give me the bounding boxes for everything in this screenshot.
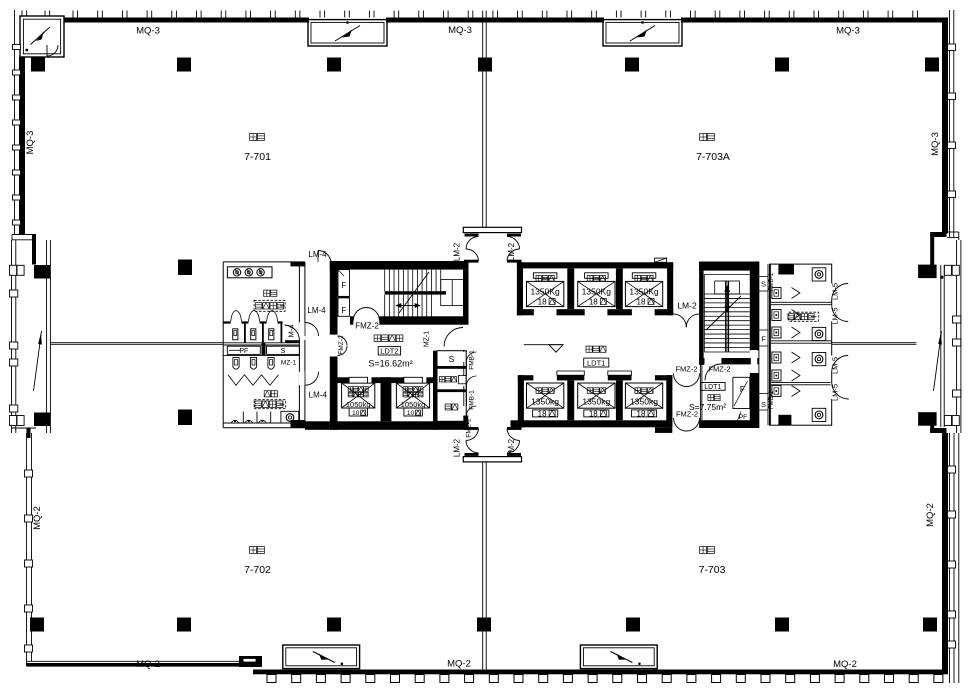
svg-text:18: 18 (637, 409, 646, 418)
svg-text:18: 18 (589, 297, 598, 306)
svg-text:1350kg: 1350kg (531, 396, 559, 406)
svg-text:1350kg: 1350kg (630, 396, 658, 406)
svg-text:LM-5: LM-5 (831, 384, 840, 401)
svg-text:18: 18 (637, 297, 646, 306)
svg-text:18: 18 (538, 297, 547, 306)
svg-text:MZ-1: MZ-1 (281, 360, 297, 367)
svg-text:MZ-1: MZ-1 (424, 331, 431, 347)
svg-text:18: 18 (589, 409, 598, 418)
svg-text:LM-5: LM-5 (831, 357, 840, 374)
svg-text:LM-2: LM-2 (453, 242, 462, 261)
svg-text:10: 10 (407, 410, 415, 417)
svg-text:LM-2: LM-2 (677, 301, 697, 311)
svg-text:1350Kg: 1350Kg (629, 286, 659, 296)
svg-text:S: S (281, 348, 286, 355)
svg-text:1350Kg: 1350Kg (530, 286, 560, 296)
svg-text:LM-2: LM-2 (507, 242, 516, 261)
svg-text:PF: PF (739, 414, 747, 421)
svg-text:LM-5: LM-5 (831, 307, 840, 324)
svg-text:MQ-3: MQ-3 (836, 26, 860, 37)
svg-text:S: S (449, 354, 455, 364)
svg-text:MQ-2: MQ-2 (925, 503, 936, 527)
svg-text:F: F (341, 281, 346, 290)
svg-text:FMZ-2: FMZ-2 (675, 365, 697, 374)
svg-text:LM-4: LM-4 (309, 391, 328, 400)
svg-text:7-703A: 7-703A (696, 151, 730, 163)
svg-text:FMB-1: FMB-1 (769, 390, 775, 409)
svg-text:7-701: 7-701 (244, 151, 271, 163)
svg-text:MQ-3: MQ-3 (25, 131, 36, 155)
svg-text:MQ-3: MQ-3 (448, 25, 472, 36)
svg-text:LDT1: LDT1 (587, 359, 605, 368)
svg-text:7-703: 7-703 (699, 564, 726, 576)
svg-text:LM-5: LM-5 (831, 283, 840, 300)
svg-text:PF: PF (239, 348, 248, 355)
svg-text:MQ-2: MQ-2 (136, 659, 160, 670)
svg-text:FMZ-2: FMZ-2 (676, 410, 698, 419)
svg-text:FMB-1: FMB-1 (469, 350, 476, 370)
svg-text:F: F (740, 385, 745, 394)
svg-text:18: 18 (538, 409, 547, 418)
svg-text:LM-2: LM-2 (453, 438, 462, 457)
svg-text:FMZ-2: FMZ-2 (708, 365, 730, 374)
svg-text:LDT2: LDT2 (380, 347, 398, 356)
svg-text:S=16.62m²: S=16.62m² (368, 359, 412, 369)
svg-text:LM-2: LM-2 (507, 438, 516, 457)
svg-text:MQ-2: MQ-2 (833, 659, 857, 670)
svg-text:M-4: M-4 (287, 325, 296, 338)
svg-text:LDT1: LDT1 (704, 384, 721, 391)
svg-text:FMB-1: FMB-1 (469, 390, 476, 410)
svg-text:FMZ-2: FMZ-2 (355, 322, 379, 331)
svg-text:LM-4: LM-4 (307, 306, 326, 315)
svg-text:F: F (341, 306, 346, 315)
svg-text:S: S (761, 280, 766, 289)
svg-text:FMZ-2: FMZ-2 (466, 418, 473, 438)
svg-text:10: 10 (352, 410, 360, 417)
svg-text:S: S (761, 400, 766, 409)
svg-text:FMZ-2: FMZ-2 (338, 335, 345, 355)
svg-text:1350kg: 1350kg (582, 396, 610, 406)
svg-text:1350Kg: 1350Kg (582, 286, 612, 296)
svg-text:7-702: 7-702 (244, 564, 271, 576)
svg-text:MQ-3: MQ-3 (930, 132, 941, 156)
svg-text:MQ-3: MQ-3 (136, 26, 160, 37)
svg-text:F: F (761, 335, 766, 344)
svg-text:MQ-2: MQ-2 (447, 659, 471, 670)
svg-text:FMB-1: FMB-1 (769, 272, 775, 291)
svg-text:MQ-2: MQ-2 (32, 506, 43, 530)
